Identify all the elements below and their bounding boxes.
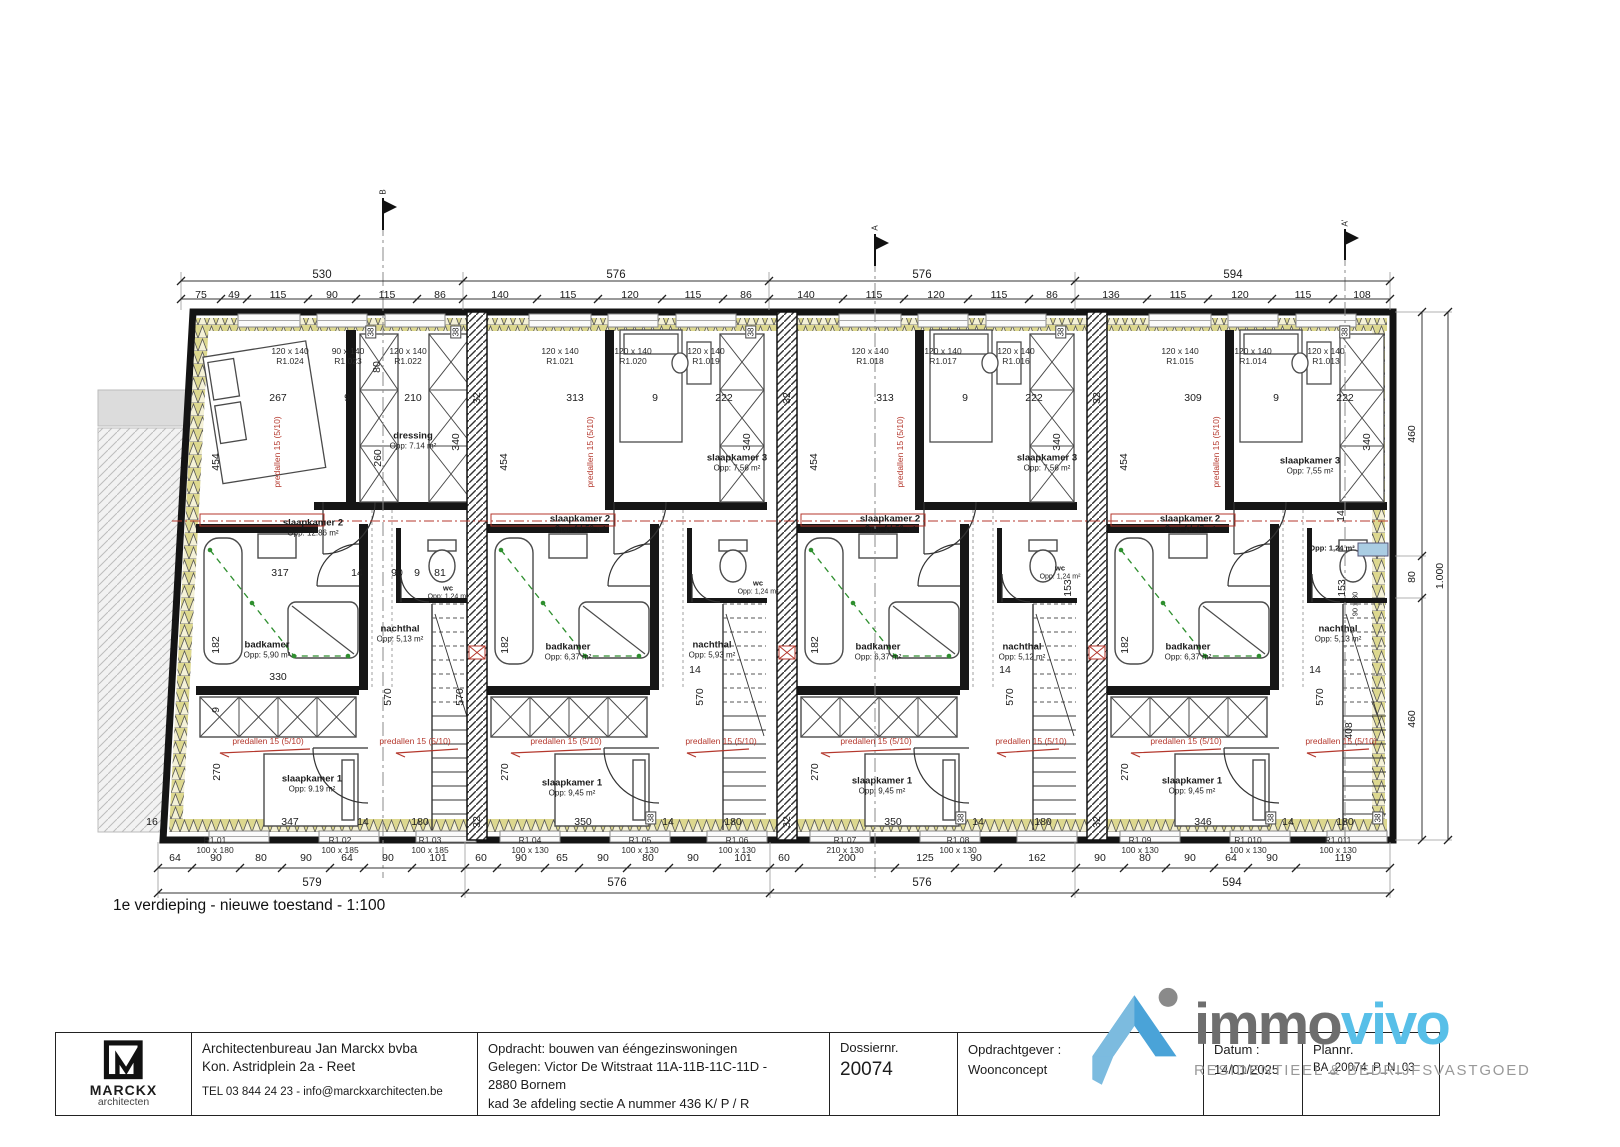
project-info: Opdracht: bouwen van ééngezinswoningen G… [478,1033,830,1115]
architect-name: Architectenbureau Jan Marckx bvba [202,1040,467,1058]
client-value: Woonconcept [968,1060,1193,1080]
project-line3: 2880 Bornem [488,1076,819,1094]
client-info: Opdrachtgever : Woonconcept [958,1033,1204,1115]
floor-plan-drawing [0,0,1620,1147]
drawing-sheet: 5305765765947549115901158614011512011586… [0,0,1620,1147]
architect-logo-sub: architecten [98,1096,149,1108]
neighbour-wall [98,390,190,426]
architect-info: Architectenbureau Jan Marckx bvba Kon. A… [192,1033,478,1115]
project-line1: Opdracht: bouwen van ééngezinswoningen [488,1040,819,1058]
dossier-value: 20074 [840,1059,947,1081]
dossier-number: Dossiernr. 20074 [830,1033,958,1115]
plannr-label: Plannr. [1313,1040,1429,1060]
client-label: Opdrachtgever : [968,1040,1193,1060]
date-label: Datum : [1214,1040,1292,1060]
date-info: Datum : 14/01/2025 [1204,1033,1303,1115]
date-value: 14/01/2025 [1214,1060,1292,1080]
plan-number: Plannr. BA_20074_P_N_03 [1303,1033,1439,1115]
project-line2: Gelegen: Victor De Witstraat 11A-11B-11C… [488,1058,819,1076]
highlighted-wall-element [1358,543,1388,556]
marckx-logo-icon [98,1040,150,1081]
plan-caption: 1e verdieping - nieuwe toestand - 1:100 [113,897,385,915]
title-block: MARCKX architecten Architectenbureau Jan… [55,1032,1440,1116]
architect-logo: MARCKX architecten [56,1033,192,1115]
project-line4: kad 3e afdeling sectie A nummer 436 K/ P… [488,1095,819,1113]
architect-address: Kon. Astridplein 2a - Reet [202,1058,467,1076]
architect-contact: TEL 03 844 24 23 - info@marckxarchitecte… [202,1085,467,1101]
dossier-label: Dossiernr. [840,1040,947,1055]
plannr-value: BA_20074_P_N_03 [1313,1060,1429,1077]
